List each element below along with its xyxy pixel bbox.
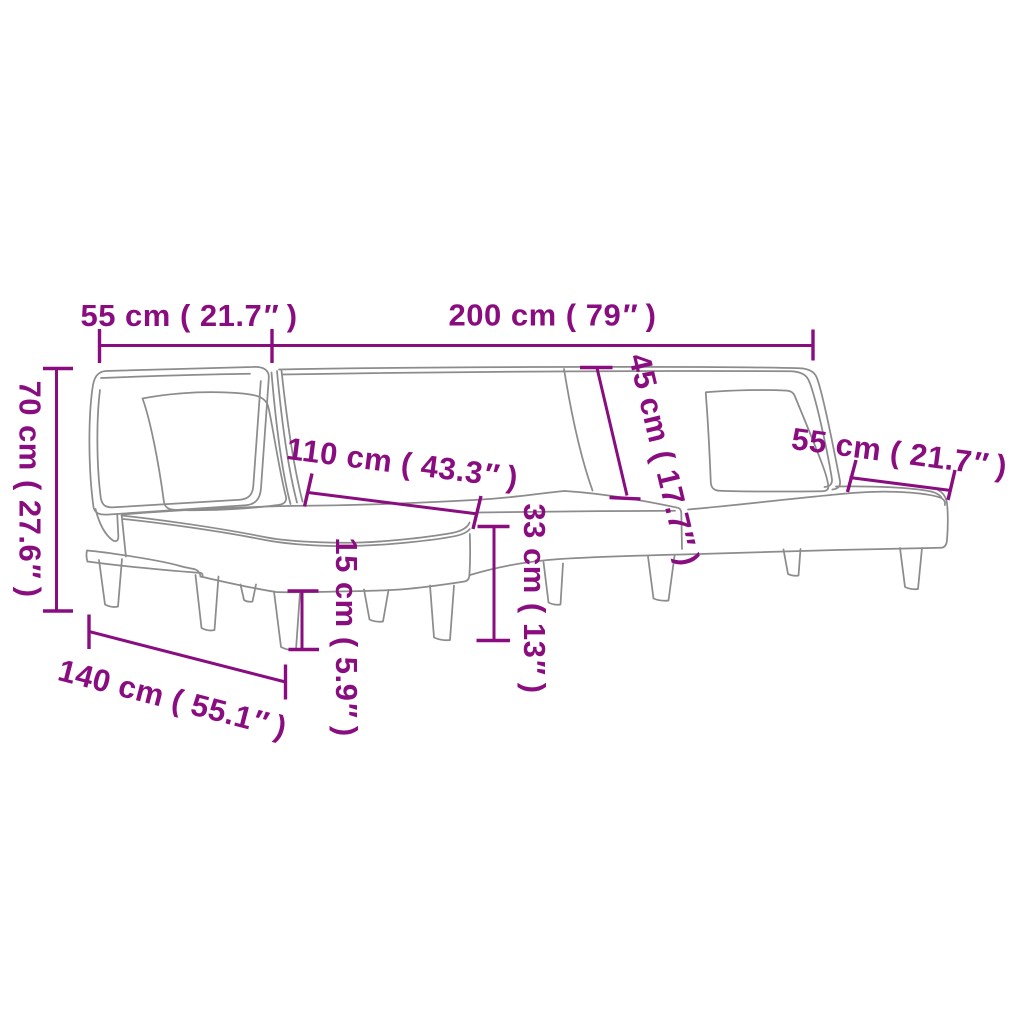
- svg-text:55 cm ( 21.7″ ): 55 cm ( 21.7″ ): [80, 298, 297, 333]
- svg-text:33 cm ( 13″ ): 33 cm ( 13″ ): [517, 503, 552, 693]
- svg-text:70 cm ( 27.6″ ): 70 cm ( 27.6″ ): [13, 380, 48, 597]
- svg-text:55 cm ( 21.7″ ): 55 cm ( 21.7″ ): [789, 421, 1009, 484]
- svg-text:45 cm ( 17.7″ ): 45 cm ( 17.7″ ): [622, 350, 707, 569]
- svg-text:200 cm ( 79″ ): 200 cm ( 79″ ): [449, 298, 657, 333]
- svg-text:15 cm ( 5.9″ ): 15 cm ( 5.9″ ): [329, 537, 364, 736]
- svg-text:110 cm ( 43.3″ ): 110 cm ( 43.3″ ): [284, 431, 520, 495]
- svg-text:140 cm ( 55.1″ ): 140 cm ( 55.1″ ): [55, 652, 291, 745]
